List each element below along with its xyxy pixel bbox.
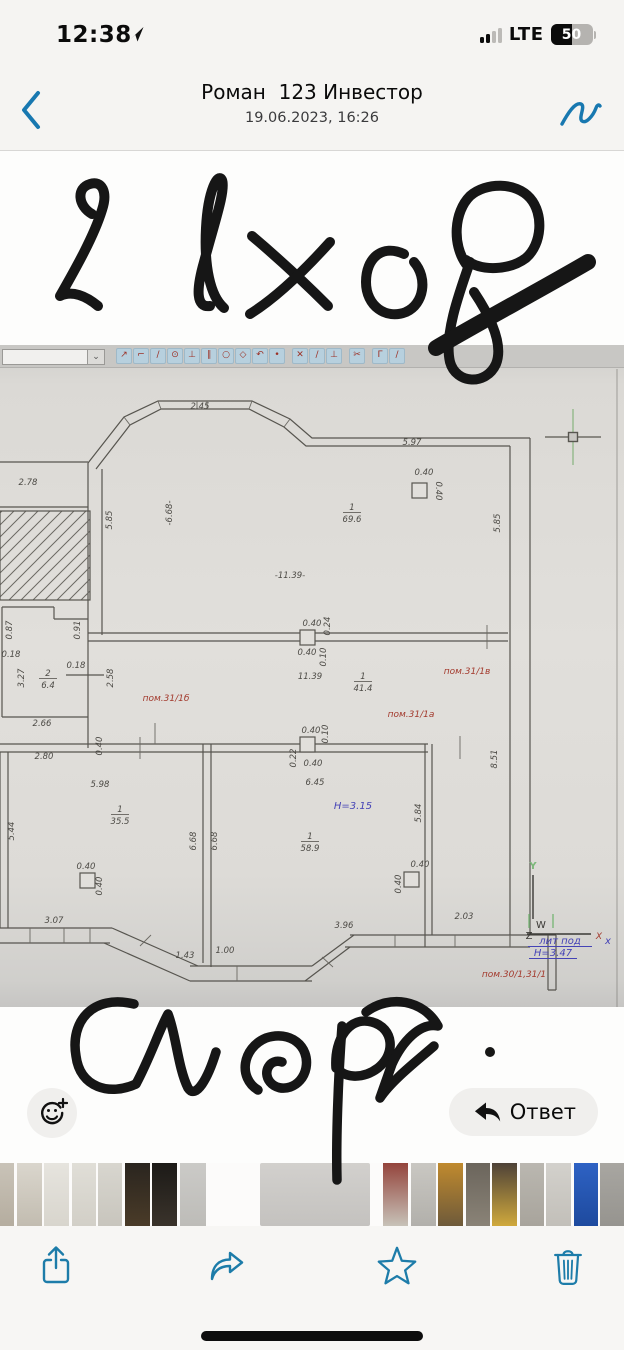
plan-label: 3.96 bbox=[335, 921, 355, 931]
plan-label: 2.78 bbox=[19, 478, 39, 488]
scribble-icon bbox=[558, 91, 602, 129]
plan-label: пом.31/1б bbox=[143, 694, 190, 704]
room-number: 1 bbox=[349, 503, 354, 513]
markup-button[interactable] bbox=[554, 84, 606, 136]
forward-arrow-icon bbox=[205, 1244, 249, 1288]
plan-label: -11.39- bbox=[275, 571, 305, 581]
thumbnail[interactable] bbox=[574, 1163, 598, 1226]
plan-label: 6.68 bbox=[210, 831, 220, 851]
plan-label: H=3.15 bbox=[334, 801, 372, 812]
plan-label: 5.97 bbox=[403, 438, 423, 448]
plan-label: 0.87 bbox=[5, 620, 15, 640]
plan-label: 0.10 bbox=[319, 648, 329, 667]
plan-label: 0.40 bbox=[411, 860, 430, 870]
thumbnail[interactable] bbox=[411, 1163, 436, 1226]
plan-label: 0.40 bbox=[77, 862, 96, 872]
plan-label: 0.40 bbox=[95, 877, 105, 896]
plan-label: 0.40 bbox=[304, 759, 323, 769]
reply-button-label: Ответ bbox=[510, 1100, 576, 1124]
thumbnail[interactable] bbox=[466, 1163, 490, 1226]
plan-label: 0.40 bbox=[302, 726, 321, 736]
add-reaction-button[interactable] bbox=[27, 1088, 77, 1138]
room-area: 69.6 bbox=[343, 515, 363, 525]
clock: 12:38 bbox=[56, 22, 132, 48]
thumbnail[interactable] bbox=[98, 1163, 122, 1226]
plan-label: 5.98 bbox=[91, 780, 111, 790]
photo-viewer-screen: 12:38 LTE 50 bbox=[0, 0, 624, 1350]
thumbnail[interactable] bbox=[44, 1163, 69, 1226]
floor-plan-drawing: 2.455.970.400.402.785.85-6.68-5.85-11.39… bbox=[0, 345, 624, 1007]
trash-icon bbox=[546, 1243, 590, 1289]
plan-label: Z bbox=[526, 931, 533, 942]
plan-label: 0.10 bbox=[321, 725, 331, 744]
thumbnail[interactable] bbox=[520, 1163, 544, 1226]
room-number: 1 bbox=[307, 832, 312, 842]
delete-button[interactable] bbox=[542, 1240, 594, 1292]
share-button[interactable] bbox=[30, 1240, 82, 1292]
room-area: 41.4 bbox=[354, 684, 373, 694]
plan-label: 2.80 bbox=[35, 752, 54, 762]
room-number: 1 bbox=[117, 805, 122, 815]
message-footer bbox=[0, 1007, 624, 1163]
plan-label: 2.66 bbox=[33, 719, 53, 729]
plan-label: 5.84 bbox=[414, 804, 424, 823]
network-type: LTE bbox=[509, 24, 544, 45]
plan-label: 6.45 bbox=[306, 778, 325, 788]
plan-label: Y bbox=[528, 861, 537, 872]
plan-label: 3.27 bbox=[17, 668, 27, 688]
chevron-left-icon bbox=[17, 89, 43, 131]
plan-label: пом.30/1,31/1 bbox=[482, 970, 546, 980]
plan-label: 0.18 bbox=[67, 661, 87, 671]
plan-label: 0.91 bbox=[73, 621, 83, 640]
thumbnail[interactable] bbox=[600, 1163, 624, 1226]
favorite-button[interactable] bbox=[371, 1240, 423, 1292]
plan-label: 0.40 bbox=[433, 482, 443, 501]
signal-strength-icon bbox=[480, 27, 502, 43]
plan-label: пом.31/1а bbox=[388, 710, 435, 720]
plan-label: 2.58 bbox=[106, 668, 116, 688]
plan-label: 0.40 bbox=[95, 737, 105, 756]
plan-label: 3.07 bbox=[45, 916, 65, 926]
plan-label: 8.51 bbox=[490, 750, 500, 769]
battery-percent: 50 bbox=[551, 24, 593, 45]
plan-label: X bbox=[595, 932, 603, 942]
status-bar: 12:38 LTE 50 bbox=[0, 0, 624, 54]
floor-plan-photo[interactable]: ⌄ ↗⌐∕⊙⊥∥○◇↶•✕∕⊥✂Γ∕ bbox=[0, 345, 624, 1007]
plan-label: W bbox=[536, 920, 546, 931]
thumbnail[interactable] bbox=[125, 1163, 150, 1226]
home-indicator[interactable] bbox=[201, 1331, 423, 1341]
plan-label: 0.24 bbox=[323, 617, 333, 636]
plan-label: 6.68 bbox=[189, 831, 199, 851]
top-chrome: 12:38 LTE 50 bbox=[0, 0, 624, 151]
message-timestamp: 19.06.2023, 16:26 bbox=[90, 110, 534, 126]
plan-label: 0.40 bbox=[415, 468, 434, 478]
reply-arrow-icon bbox=[471, 1098, 501, 1126]
room-number: 2 bbox=[45, 669, 50, 679]
plan-label: H=3.47 bbox=[534, 948, 573, 959]
plan-label: 5.85 bbox=[493, 514, 503, 533]
thumbnail[interactable] bbox=[152, 1163, 177, 1226]
room-area: 6.4 bbox=[41, 681, 55, 691]
plan-label: лит под bbox=[538, 936, 581, 947]
thumbnail[interactable] bbox=[180, 1163, 206, 1226]
plan-label: 1.00 bbox=[216, 946, 235, 956]
thumbnail[interactable] bbox=[438, 1163, 463, 1226]
star-icon bbox=[374, 1243, 420, 1289]
thumbnail[interactable] bbox=[492, 1163, 517, 1226]
room-area: 58.9 bbox=[301, 844, 320, 854]
room-area: 35.5 bbox=[111, 817, 130, 827]
room-number: 1 bbox=[360, 672, 365, 682]
emoji-smile-plus-icon bbox=[36, 1097, 68, 1129]
reply-button[interactable]: Ответ bbox=[449, 1088, 598, 1136]
thumbnail[interactable] bbox=[72, 1163, 96, 1226]
plan-label: 1.43 bbox=[176, 951, 195, 961]
plan-label: 0.18 bbox=[2, 650, 22, 660]
plan-label: 2.45 bbox=[191, 402, 210, 412]
forward-button[interactable] bbox=[201, 1240, 253, 1292]
plan-label: x bbox=[604, 936, 611, 947]
plan-label: 2.03 bbox=[455, 912, 474, 922]
thumbnail-strip[interactable] bbox=[0, 1163, 624, 1226]
battery-icon: 50 bbox=[551, 24, 597, 45]
thumbnail[interactable] bbox=[383, 1163, 408, 1226]
plan-label: 5.85 bbox=[105, 511, 115, 530]
share-icon bbox=[34, 1244, 78, 1288]
plan-label: 0.40 bbox=[298, 648, 317, 658]
plan-label: 0.40 bbox=[394, 875, 404, 894]
thumbnail[interactable] bbox=[17, 1163, 42, 1226]
plan-label: 0.40 bbox=[303, 619, 322, 629]
thumbnail[interactable] bbox=[546, 1163, 571, 1226]
back-button[interactable] bbox=[10, 86, 50, 134]
thumbnail[interactable] bbox=[0, 1163, 14, 1226]
plan-label: 5.44 bbox=[7, 822, 17, 841]
conversation-title[interactable]: Роман 123 Инвестор bbox=[90, 80, 534, 104]
thumbnail-selected[interactable] bbox=[260, 1163, 370, 1226]
plan-label: 11.39 bbox=[298, 672, 322, 682]
navigation-bar: Роман 123 Инвестор 19.06.2023, 16:26 bbox=[0, 54, 624, 150]
plan-label: -6.68- bbox=[165, 500, 175, 525]
location-arrow-icon bbox=[128, 26, 145, 47]
plan-label: 0.22 bbox=[289, 749, 299, 768]
cad-crosshair-cursor bbox=[545, 409, 601, 465]
plan-label: пом.31/1в bbox=[444, 667, 491, 677]
